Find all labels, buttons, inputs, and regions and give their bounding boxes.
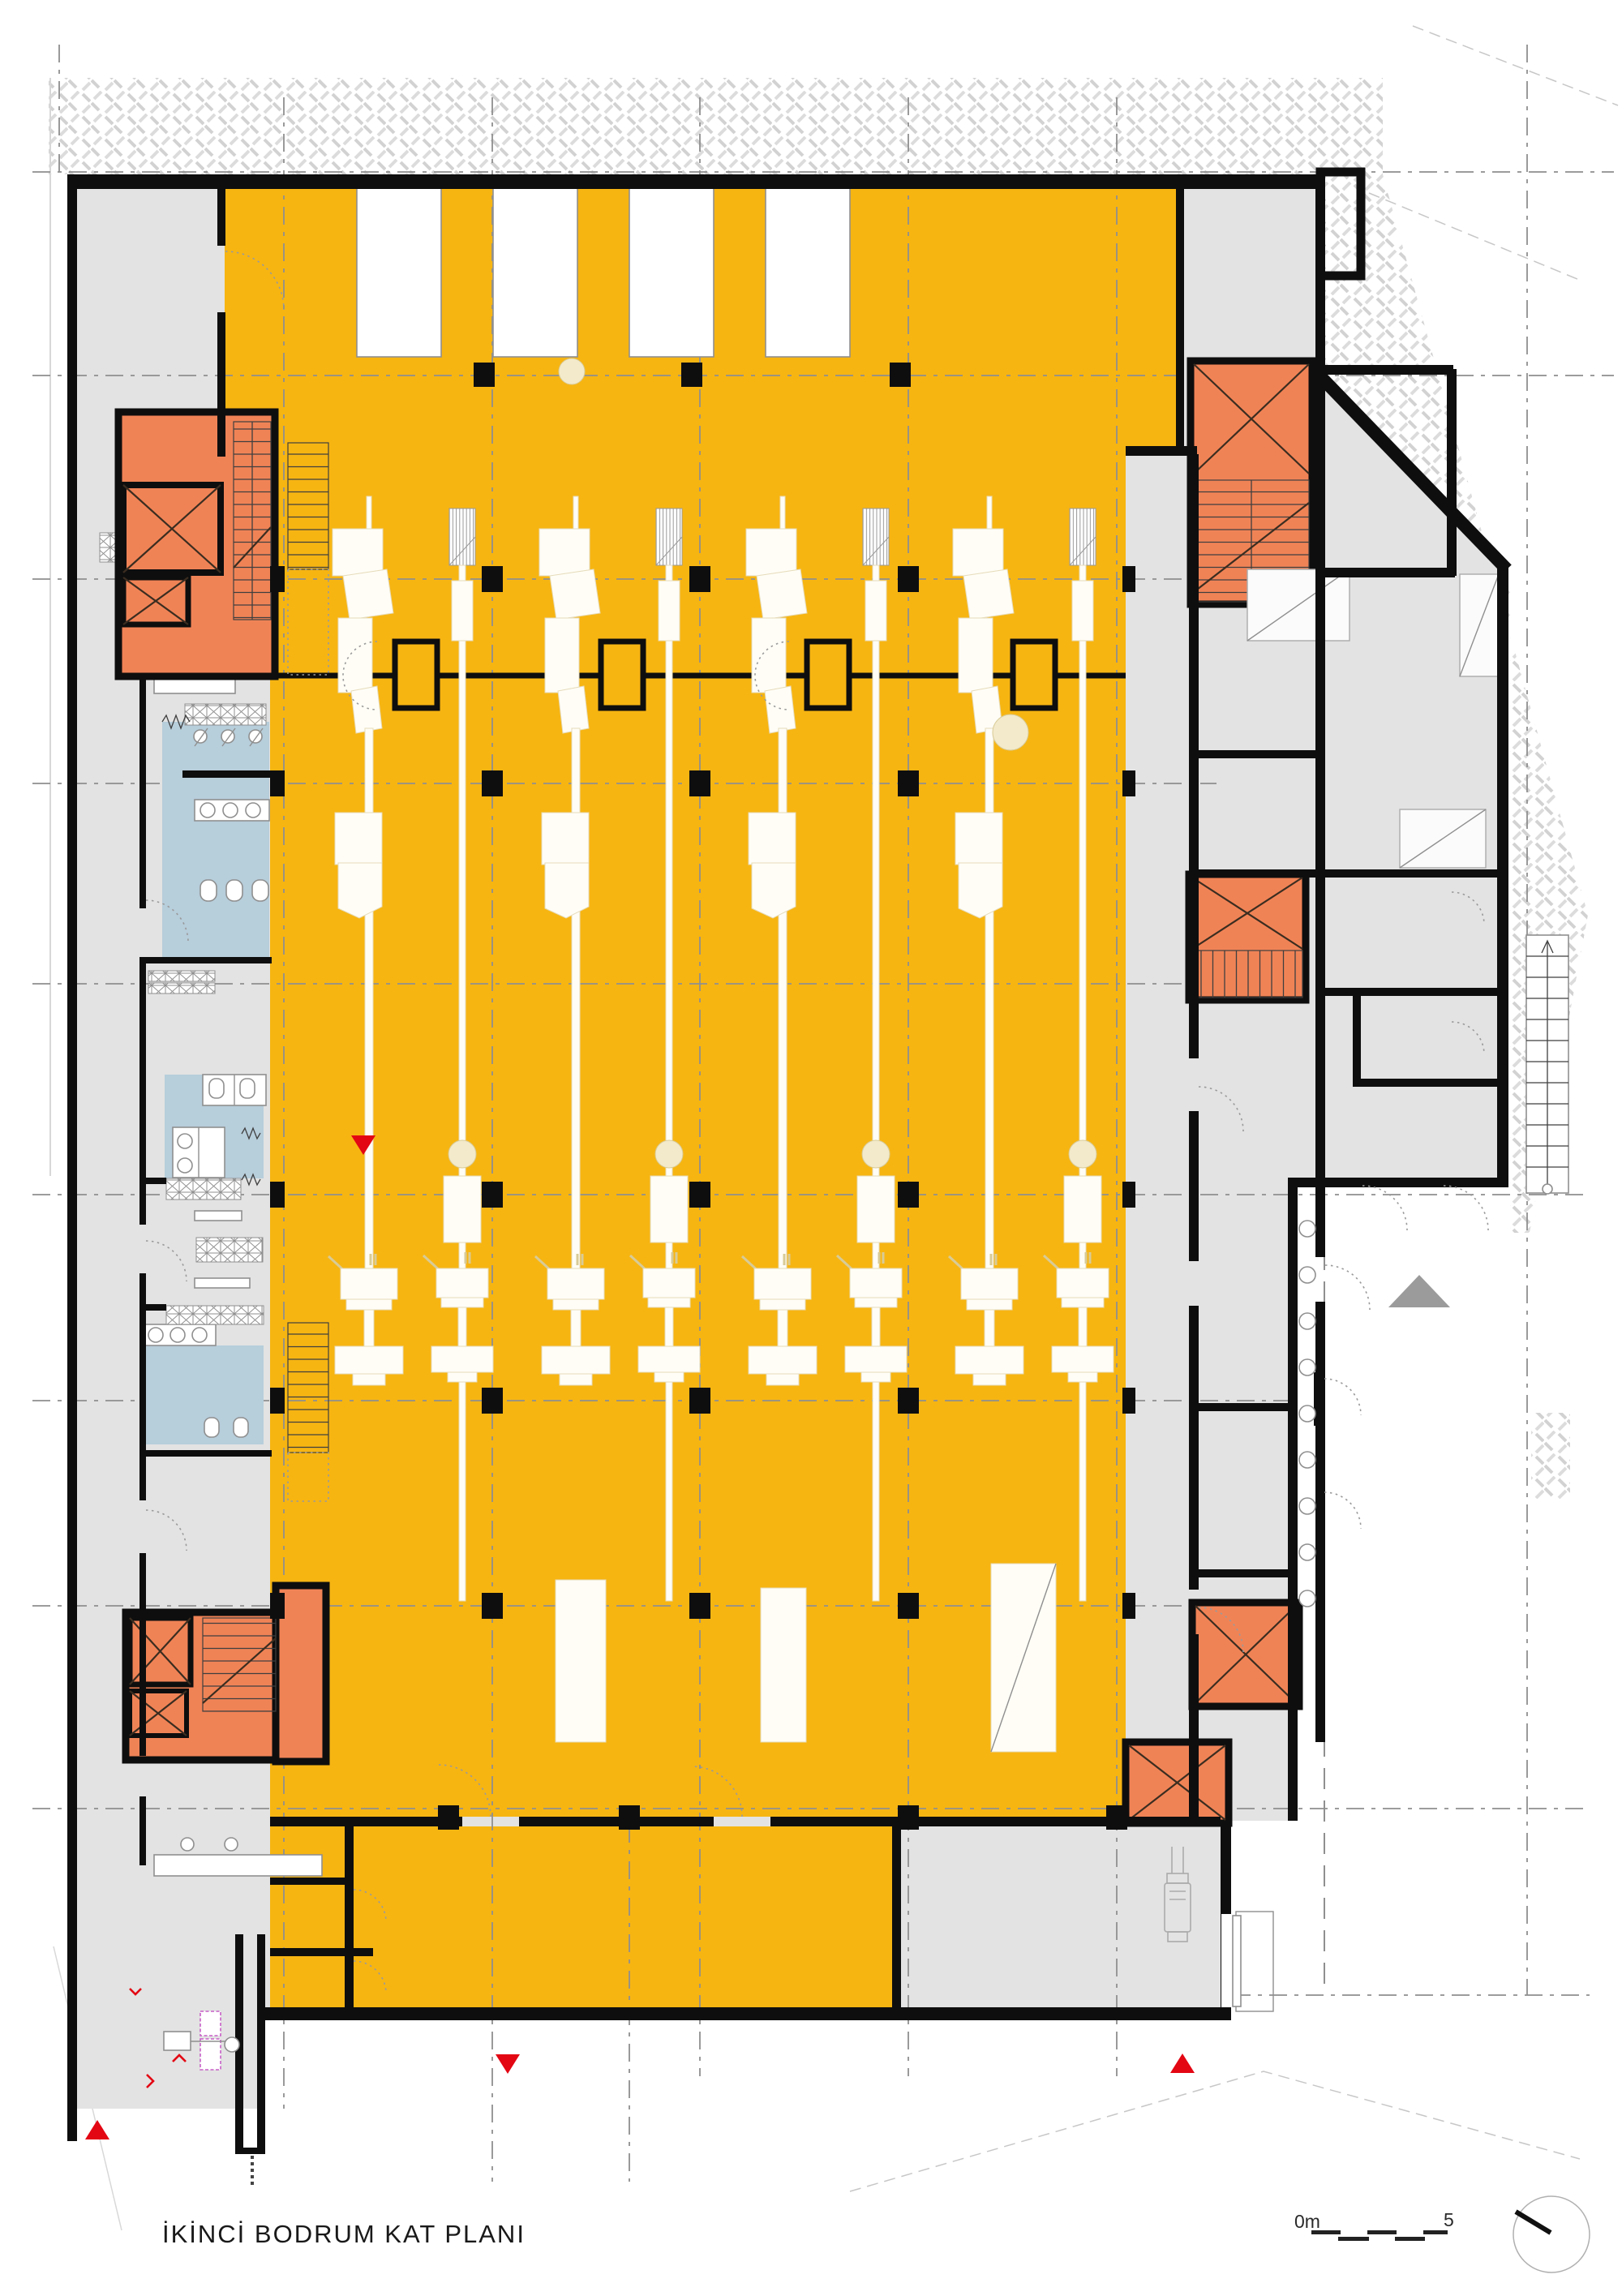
floor-plan-sheet: İKİNCİ BODRUM KAT PLANI 0m 5 bbox=[0, 0, 1622, 2296]
red-triangle-icon bbox=[496, 2054, 520, 2074]
scale-bar: 0m 5 bbox=[1294, 2209, 1454, 2241]
red-triangle-icon bbox=[85, 2120, 109, 2139]
sheet-title: İKİNCİ BODRUM KAT PLANI bbox=[162, 2220, 526, 2248]
red-triangle-icon bbox=[1170, 2054, 1195, 2073]
scale-end-label: 5 bbox=[1444, 2209, 1454, 2230]
north-arrow-icon bbox=[1513, 2196, 1590, 2272]
ramp-triangle-icon bbox=[1388, 1275, 1450, 1307]
production-rooms-south bbox=[270, 1826, 892, 2007]
floor-plan-drawing: İKİNCİ BODRUM KAT PLANI 0m 5 bbox=[0, 0, 1622, 2296]
annotation: İKİNCİ BODRUM KAT PLANI 0m 5 bbox=[162, 2196, 1590, 2272]
exterior-stair bbox=[1526, 935, 1568, 1194]
scale-start-label: 0m bbox=[1294, 2211, 1320, 2232]
